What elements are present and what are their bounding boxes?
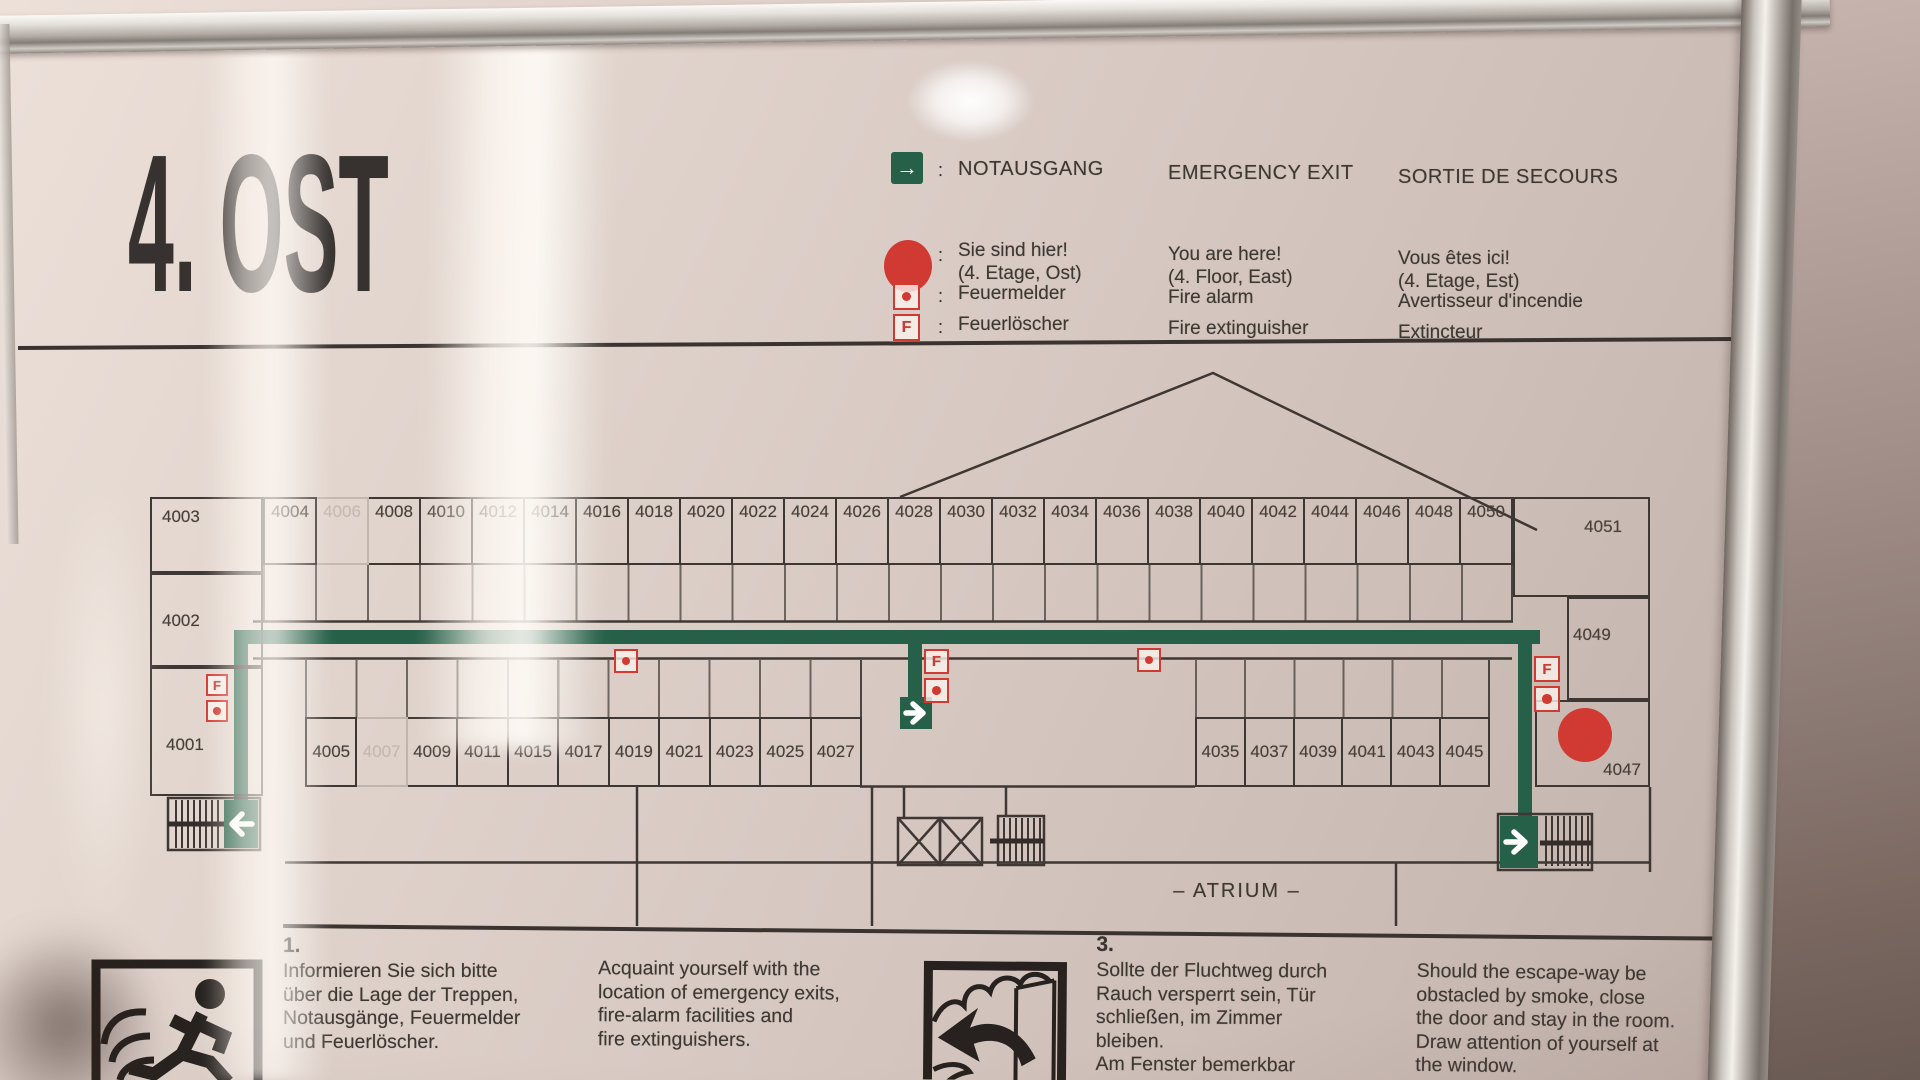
room-number: 4047 — [1603, 760, 1641, 780]
top-room-strip: 4004400640084010401240144016401840204022… — [263, 497, 1513, 565]
room-cell: 4038 — [1149, 497, 1201, 565]
room-cell: 4027 — [812, 717, 862, 787]
room-cell: 4044 — [1305, 497, 1357, 565]
room-cell: 4006 — [317, 497, 369, 565]
room-number: 4014 — [531, 502, 569, 522]
fire-extinguisher-icon: F — [924, 649, 949, 674]
room-number: 4049 — [1573, 625, 1611, 645]
room-number: 4022 — [739, 502, 777, 522]
instruction-1-en-lines: Acquaint yourself with thelocation of em… — [598, 957, 918, 1053]
plan-walls — [253, 373, 1650, 926]
instruction-1-de-lines: Informieren Sie sich bitteüber die Lage … — [283, 960, 603, 1054]
room-number: 4017 — [565, 742, 603, 762]
instruction-line: Am Fenster bemerkbar — [1096, 1053, 1416, 1079]
top-rooms-doors — [263, 565, 1513, 622]
atrium-label: – ATRIUM – — [1132, 880, 1342, 903]
room-number: 4034 — [1051, 502, 1089, 522]
room-number: 4050 — [1467, 502, 1505, 522]
room-cell: 4032 — [993, 497, 1045, 565]
room-cell: 4012 — [473, 497, 525, 565]
room-number: 4011 — [464, 742, 501, 762]
room-number: 4027 — [817, 742, 855, 762]
instruction-line: fire-alarm facilities and — [598, 1004, 918, 1029]
room-cell: 4036 — [1097, 497, 1149, 565]
room-number: 4037 — [1250, 742, 1288, 762]
room-number: 4025 — [766, 742, 804, 762]
bottom-rooms-doors — [305, 660, 862, 717]
room-number: 4015 — [514, 742, 552, 762]
instruction-1-en: Acquaint yourself with thelocation of em… — [598, 957, 918, 1053]
room-cell: 4034 — [1045, 497, 1097, 565]
instruction-line: Informieren Sie sich bitte — [283, 960, 603, 984]
mid-staircase — [990, 816, 1044, 865]
instruction-line: Notausgänge, Feuermelder — [283, 1007, 603, 1031]
fire-alarm-icon — [1534, 686, 1560, 712]
room-number: 4039 — [1299, 742, 1337, 762]
room-cell: 4007 — [357, 717, 407, 787]
room-number: 4032 — [999, 502, 1037, 522]
instruction-line: Acquaint yourself with the — [598, 957, 918, 982]
instruction-line: fire extinguishers. — [598, 1028, 918, 1053]
room-cell: 4022 — [733, 497, 785, 565]
instruction-3-de-lines: Sollte der Fluchtweg durchRauch versperr… — [1096, 959, 1417, 1079]
instruction-1-de: 1. Informieren Sie sich bitteüber die La… — [283, 934, 603, 1054]
room-cell: 4005 — [307, 717, 357, 787]
room-4051: 4051 — [1513, 497, 1650, 597]
room-number: 4042 — [1259, 502, 1297, 522]
fleeing-person-pictogram — [88, 956, 266, 1080]
instruction-line: über die Lage der Treppen, — [283, 984, 603, 1008]
left-staircase-exit — [168, 798, 260, 850]
room-cell: 4035 — [1197, 717, 1246, 787]
fire-alarm-icon — [924, 678, 949, 703]
close-arrow-icon — [938, 1008, 1037, 1067]
instruction-3-en: Should the escape-way beobstacled by smo… — [1415, 960, 1737, 1080]
room-number: 4019 — [615, 742, 653, 762]
fire-extinguisher-icon: F — [206, 674, 228, 696]
room-cell: 4037 — [1246, 717, 1295, 787]
room-number: 4016 — [583, 502, 621, 522]
room-number: 4026 — [843, 502, 881, 522]
you-are-here-dot — [1558, 708, 1612, 762]
room-number: 4040 — [1207, 502, 1245, 522]
room-number: 4006 — [323, 502, 361, 522]
room-number: 4001 — [166, 735, 204, 755]
instruction-number: 1. — [283, 934, 603, 958]
room-4003: 4003 — [150, 497, 263, 573]
room-cell: 4048 — [1409, 497, 1461, 565]
room-cell: 4025 — [761, 717, 811, 787]
room-cell: 4045 — [1441, 717, 1490, 787]
elevator-shafts — [898, 818, 982, 865]
room-number: 4043 — [1397, 742, 1435, 762]
instruction-line: schließen, im Zimmer — [1096, 1006, 1416, 1032]
room-cell: 4023 — [711, 717, 761, 787]
room-cell: 4017 — [559, 717, 609, 787]
room-number: 4038 — [1155, 502, 1193, 522]
room-cell: 4050 — [1461, 497, 1513, 565]
room-4049: 4049 — [1567, 597, 1650, 700]
room-number: 4035 — [1202, 742, 1240, 762]
instruction-line: bleiben. — [1096, 1029, 1416, 1055]
room-cell: 4030 — [941, 497, 993, 565]
room-cell: 4021 — [660, 717, 710, 787]
room-cell: 4011 — [458, 717, 508, 787]
room-number: 4024 — [791, 502, 829, 522]
room-cell: 4040 — [1201, 497, 1253, 565]
bottom-right-rooms-doors — [1195, 660, 1490, 717]
room-number: 4046 — [1363, 502, 1401, 522]
room-cell: 4015 — [509, 717, 559, 787]
room-number: 4036 — [1103, 502, 1141, 522]
fire-alarm-icon — [614, 649, 638, 673]
room-number: 4041 — [1348, 742, 1386, 762]
room-number: 4044 — [1311, 502, 1349, 522]
room-cell: 4018 — [629, 497, 681, 565]
room-cell: 4016 — [577, 497, 629, 565]
instruction-line: Rauch versperrt sein, Tür — [1096, 982, 1416, 1008]
room-cell: 4039 — [1295, 717, 1344, 787]
evacuation-sign: 4. OST → : NOTAUSGANG EMERGENCY EXIT SOR… — [0, 0, 1920, 1080]
instruction-line: the window. — [1415, 1054, 1735, 1080]
room-number: 4012 — [479, 502, 517, 522]
room-cell: 4019 — [610, 717, 660, 787]
instruction-line: und Feuerlöscher. — [283, 1031, 603, 1055]
fire-alarm-icon — [1137, 648, 1161, 672]
running-person-icon — [130, 979, 228, 1080]
room-number: 4045 — [1446, 742, 1484, 762]
room-cell: 4046 — [1357, 497, 1409, 565]
instruction-number: 3. — [1096, 933, 1416, 959]
fire-extinguisher-icon: F — [1534, 656, 1560, 682]
room-number: 4005 — [312, 742, 350, 762]
instruction-line: Sollte der Fluchtweg durch — [1096, 959, 1416, 985]
instruction-3-en-lines: Should the escape-way beobstacled by smo… — [1415, 960, 1737, 1080]
room-cell: 4020 — [681, 497, 733, 565]
room-cell: 4024 — [785, 497, 837, 565]
room-cell: 4008 — [369, 497, 421, 565]
room-number: 4021 — [665, 742, 703, 762]
bottom-room-strip: 4005400740094011401540174019402140234025… — [305, 717, 862, 787]
room-number: 4003 — [162, 507, 200, 527]
room-number: 4028 — [895, 502, 933, 522]
room-cell: 4010 — [421, 497, 473, 565]
room-number: 4020 — [687, 502, 725, 522]
instruction-line: location of emergency exits, — [598, 981, 918, 1006]
room-number: 4048 — [1415, 502, 1453, 522]
room-number: 4018 — [635, 502, 673, 522]
room-number: 4004 — [271, 502, 309, 522]
room-number: 4030 — [947, 502, 985, 522]
room-cell: 4014 — [525, 497, 577, 565]
room-cell: 4028 — [889, 497, 941, 565]
room-number: 4008 — [375, 502, 413, 522]
room-4047-you-are-here: 4047 — [1535, 700, 1650, 787]
room-number: 4023 — [716, 742, 754, 762]
room-cell: 4009 — [408, 717, 458, 787]
room-cell: 4042 — [1253, 497, 1305, 565]
room-cell: 4026 — [837, 497, 889, 565]
room-cell: 4043 — [1392, 717, 1441, 787]
fire-alarm-icon — [206, 700, 228, 722]
room-number: 4007 — [363, 742, 401, 762]
instruction-3-de: 3. Sollte der Fluchtweg durchRauch versp… — [1096, 933, 1417, 1079]
room-4002: 4002 — [150, 573, 263, 667]
room-number: 4010 — [427, 502, 465, 522]
room-number: 4009 — [413, 742, 451, 762]
door-edge-lines — [1015, 980, 1054, 1080]
smoke-close-door-pictogram — [919, 957, 1070, 1080]
room-cell: 4004 — [265, 497, 317, 565]
bottom-right-room-strip: 403540374039404140434045 — [1195, 717, 1490, 787]
room-number: 4051 — [1584, 517, 1622, 537]
room-cell: 4041 — [1343, 717, 1392, 787]
framed-evacuation-plan-photo: 4. OST → : NOTAUSGANG EMERGENCY EXIT SOR… — [0, 0, 1920, 1080]
room-number: 4002 — [162, 611, 200, 631]
